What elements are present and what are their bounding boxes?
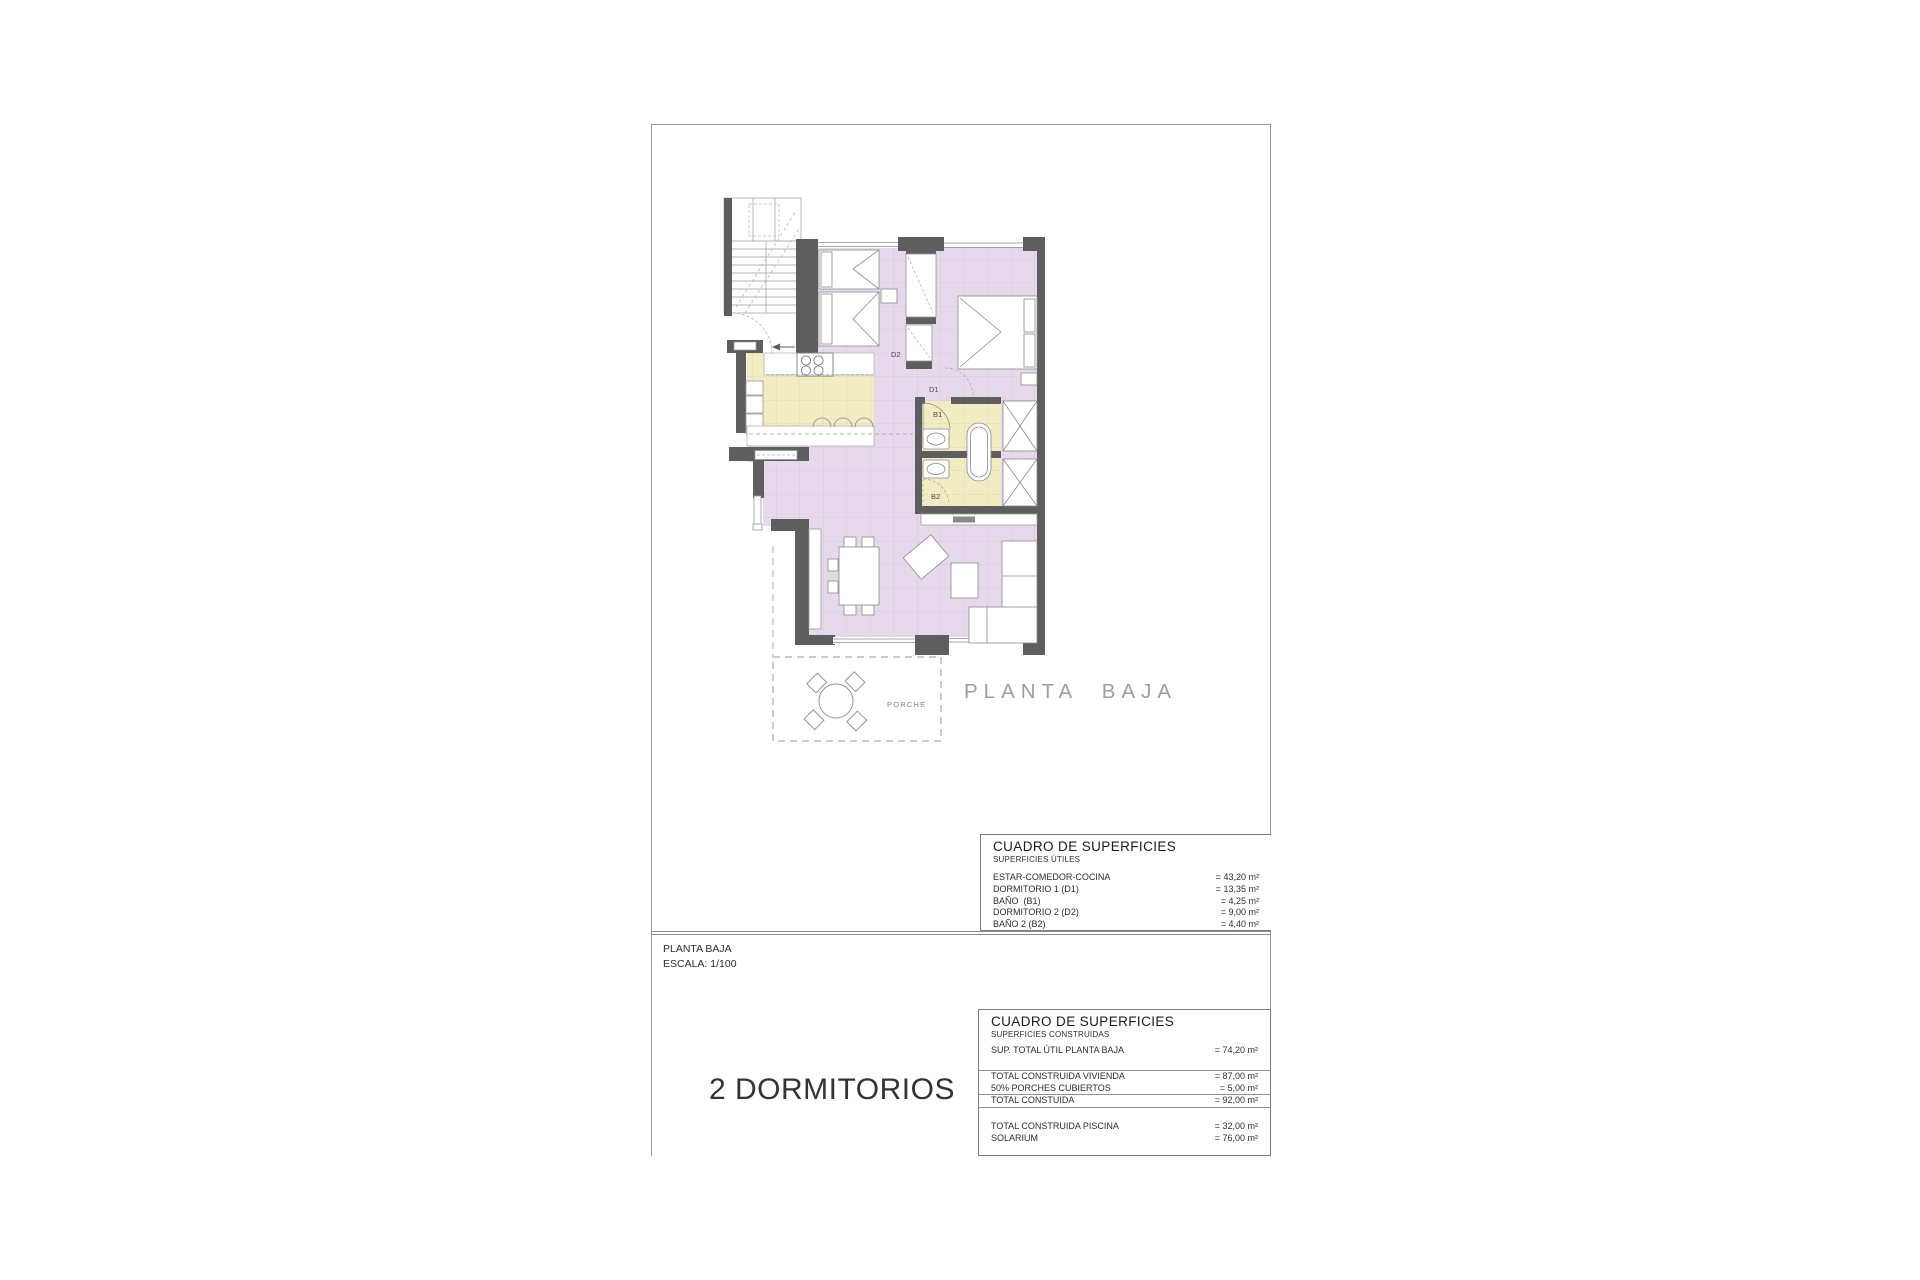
scale-plan-name: PLANTA BAJA	[663, 942, 737, 957]
row-label: BAÑO (B1)	[993, 896, 1041, 908]
table-row: SOLARIUM = 76,00 m²	[979, 1133, 1270, 1145]
porch-label: PORCHE	[887, 700, 926, 709]
entry-arrow	[772, 344, 795, 351]
surface-table-construidas: CUADRO DE SUPERFICIES SUPERFICIES CONSTR…	[978, 1009, 1271, 1156]
row-value: = 76,00 m²	[1215, 1133, 1258, 1145]
row-value: = 92,00 m²	[1215, 1095, 1258, 1107]
row-label: BAÑO 2 (B2)	[993, 919, 1046, 931]
stove	[797, 353, 833, 376]
tv-bench	[921, 514, 1037, 525]
row-label: 50% PORCHES CUBIERTOS	[991, 1083, 1111, 1095]
table-title: CUADRO DE SUPERFICIES	[991, 1014, 1258, 1029]
table-row: DORMITORIO 1 (D1) = 13,35 m²	[981, 884, 1271, 896]
label-d2: D2	[891, 350, 901, 359]
table-subtitle: SUPERFICIES ÚTILES	[993, 855, 1259, 864]
table-row: 50% PORCHES CUBIERTOS = 5,00 m²	[979, 1083, 1270, 1095]
drawing-canvas: PORCHE D2 D1 B1 B2 PLANTA BAJA CUADRO DE…	[0, 0, 1920, 1280]
coffee-table	[951, 563, 978, 598]
row-value: = 4,40 m²	[1221, 919, 1259, 931]
table-row: BAÑO (B1) = 4,25 m²	[981, 896, 1271, 908]
scale-block: PLANTA BAJA ESCALA: 1/100	[663, 942, 737, 972]
table-row: SUP. TOTAL ÚTIL PLANTA BAJA = 74,20 m²	[979, 1045, 1270, 1057]
floor-plan: PORCHE D2 D1 B1 B2 PLANTA BAJA	[712, 181, 1092, 781]
plan-sheet: PORCHE D2 D1 B1 B2 PLANTA BAJA CUADRO DE…	[651, 124, 1271, 1156]
staircase	[724, 198, 801, 353]
table-row: ESTAR-COMEDOR-COCINA = 43,20 m²	[981, 872, 1271, 884]
row-value: = 4,25 m²	[1221, 896, 1259, 908]
row-label: TOTAL CONSTRUIDA VIVIENDA	[991, 1071, 1125, 1083]
table-title: CUADRO DE SUPERFICIES	[993, 839, 1259, 854]
row-value: = 87,00 m²	[1215, 1071, 1258, 1083]
row-value: = 32,00 m²	[1215, 1121, 1258, 1133]
row-label: ESTAR-COMEDOR-COCINA	[993, 872, 1110, 884]
row-label: TOTAL CONSTUIDA	[991, 1095, 1074, 1107]
tv	[953, 517, 975, 523]
variant-label: 2 DORMITORIOS	[709, 1073, 955, 1107]
table-row: TOTAL CONSTRUIDA PISCINA = 32,00 m²	[979, 1121, 1270, 1133]
sideboard	[809, 529, 821, 629]
table-row: TOTAL CONSTUIDA = 92,00 m²	[979, 1094, 1270, 1108]
table-row: DORMITORIO 2 (D2) = 9,00 m²	[981, 907, 1271, 919]
table-row: BAÑO 2 (B2) = 4,40 m²	[981, 919, 1271, 931]
scale-value: ESCALA: 1/100	[663, 957, 737, 972]
row-value: = 74,20 m²	[1215, 1045, 1258, 1057]
row-value: = 5,00 m²	[1220, 1083, 1258, 1095]
row-value: = 13,35 m²	[1216, 884, 1259, 896]
kitchen-island	[747, 426, 874, 446]
row-label: SOLARIUM	[991, 1133, 1038, 1145]
porch-table	[804, 672, 867, 731]
title-block-divider	[651, 931, 1271, 935]
hall-closets	[906, 254, 936, 361]
row-label: DORMITORIO 2 (D2)	[993, 907, 1079, 919]
plan-title: PLANTA BAJA	[964, 680, 1177, 703]
surface-table-utiles: CUADRO DE SUPERFICIES SUPERFICIES ÚTILES…	[980, 834, 1271, 931]
label-b1: B1	[933, 410, 942, 419]
row-value: = 9,00 m²	[1221, 907, 1259, 919]
row-label: TOTAL CONSTRUIDA PISCINA	[991, 1121, 1119, 1133]
table-rows: SUP. TOTAL ÚTIL PLANTA BAJA = 74,20 m² T…	[991, 1045, 1258, 1145]
row-label: SUP. TOTAL ÚTIL PLANTA BAJA	[991, 1045, 1124, 1057]
table-rows: ESTAR-COMEDOR-COCINA = 43,20 m² DORMITOR…	[993, 872, 1259, 931]
table-subtitle: SUPERFICIES CONSTRUIDAS	[991, 1030, 1258, 1039]
table-row: TOTAL CONSTRUIDA VIVIENDA = 87,00 m²	[979, 1070, 1270, 1083]
row-label: DORMITORIO 1 (D1)	[993, 884, 1079, 896]
label-d1: D1	[929, 385, 939, 394]
row-value: = 43,20 m²	[1216, 872, 1259, 884]
label-b2: B2	[931, 492, 940, 501]
